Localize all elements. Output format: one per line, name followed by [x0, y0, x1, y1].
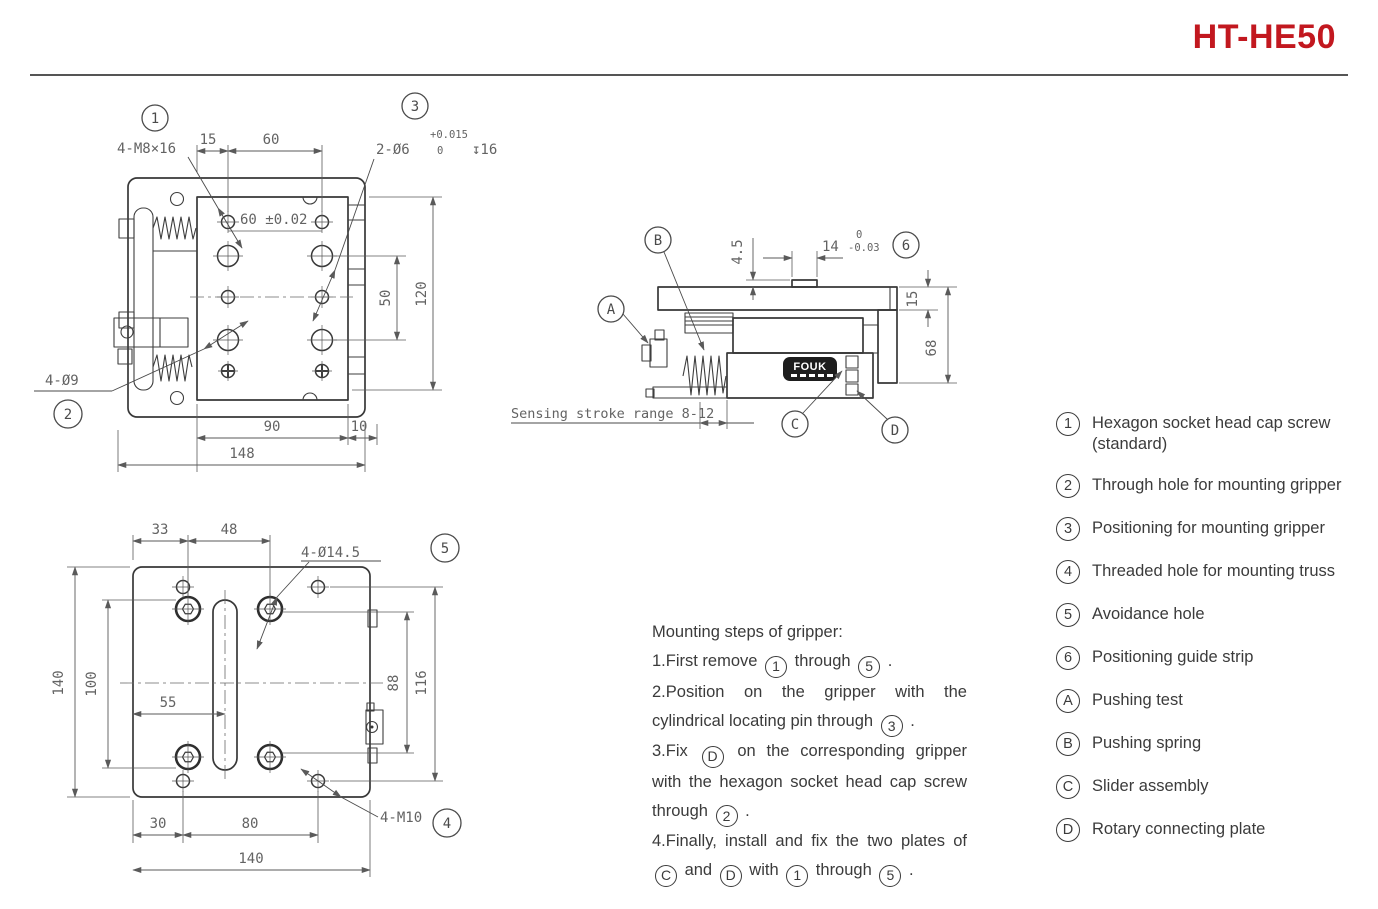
legend-rows: 1Hexagon socket head cap screw (standard…	[1056, 412, 1372, 842]
step-ref-circle: 2	[716, 805, 738, 827]
legend-item-4: 4Threaded hole for mounting truss	[1056, 560, 1372, 584]
dim-15: 15	[200, 132, 217, 148]
legend-label: Hexagon socket head cap screw (standard)	[1092, 412, 1372, 455]
bottom-view-drawing: 33 48 4-Ø14.5 5 140 100 55 88	[51, 522, 461, 877]
legend-label: Positioning for mounting gripper	[1092, 517, 1325, 539]
legend-symbol-circle: 2	[1056, 474, 1080, 498]
spring-bottom	[153, 355, 192, 381]
sensing-stroke-note: Sensing stroke range 8-12	[511, 406, 714, 422]
legend-label: Positioning guide strip	[1092, 646, 1253, 668]
dim-55: 55	[160, 695, 177, 711]
step-ref-circle: 5	[879, 865, 901, 887]
dim-88: 88	[386, 675, 402, 692]
side-view-drawing: FOUK 4.5 14 0 -0.03	[511, 227, 957, 443]
callout-a: A	[607, 302, 616, 318]
callout-5: 5	[441, 541, 449, 557]
legend-item-5: 5Avoidance hole	[1056, 603, 1372, 627]
dim-15-side: 15	[905, 291, 921, 308]
legend-item-C: CSlider assembly	[1056, 775, 1372, 799]
label-4d145: 4-Ø14.5	[301, 545, 360, 561]
step-ref-circle: D	[702, 746, 724, 768]
legend-symbol-circle: 4	[1056, 560, 1080, 584]
callout-b: B	[654, 233, 662, 249]
dim-4-5: 4.5	[730, 239, 746, 264]
dim-68: 68	[924, 340, 940, 357]
mounting-steps-body: 1.First remove 1 through 5 .2.Position o…	[652, 647, 967, 887]
mounting-steps: Mounting steps of gripper: 1.First remov…	[652, 618, 967, 887]
callout-c: C	[791, 417, 799, 433]
legend-label: Pushing spring	[1092, 732, 1201, 754]
pushing-spring-coil	[683, 356, 726, 395]
step-ref-circle: 1	[765, 656, 787, 678]
front-view-drawing: 15 60 60 ±0.02 50 120 90 10 148	[34, 93, 497, 472]
dim-14-tol-upper: 0	[856, 229, 862, 241]
dim-50: 50	[378, 290, 394, 307]
depth-symbol-16: ↧16	[472, 142, 497, 158]
dim-140-bottom: 140	[238, 851, 263, 867]
callout-1: 1	[151, 111, 159, 127]
dim-148: 148	[229, 446, 254, 462]
legend-label: Rotary connecting plate	[1092, 818, 1265, 840]
callout-6: 6	[902, 238, 910, 254]
callout-2: 2	[64, 407, 72, 423]
legend-item-1: 1Hexagon socket head cap screw (standard…	[1056, 412, 1372, 455]
brand-logo-text: FOUK	[793, 361, 826, 373]
datasheet-page: HT-HE50	[0, 0, 1378, 909]
legend-symbol-circle: 3	[1056, 517, 1080, 541]
legend-item-6: 6Positioning guide strip	[1056, 646, 1372, 670]
label-2d6: 2-Ø6	[376, 142, 410, 158]
legend-label: Threaded hole for mounting truss	[1092, 560, 1335, 582]
legend-symbol-circle: B	[1056, 732, 1080, 756]
mounting-step: 4.Finally, install and fix the two plate…	[652, 827, 967, 887]
legend-symbol-circle: 1	[1056, 412, 1080, 436]
legend-symbol-circle: C	[1056, 775, 1080, 799]
step-ref-circle: 3	[881, 715, 903, 737]
mounting-step: 1.First remove 1 through 5 .	[652, 647, 967, 678]
callout-d: D	[891, 423, 899, 439]
dim-120: 120	[414, 281, 430, 306]
step-ref-circle: C	[655, 865, 677, 887]
parts-legend: 1Hexagon socket head cap screw (standard…	[1056, 412, 1372, 861]
step-ref-circle: 5	[858, 656, 880, 678]
dim-10: 10	[351, 419, 368, 435]
legend-symbol-circle: D	[1056, 818, 1080, 842]
spring-top	[153, 217, 196, 239]
tol-upper: +0.015	[430, 129, 468, 141]
dim-60-top: 60	[263, 132, 280, 148]
mounting-step: 3.Fix D on the corresponding gripper wit…	[652, 737, 967, 827]
dim-14-tol-lower: -0.03	[848, 242, 880, 254]
dim-48: 48	[221, 522, 238, 538]
step-ref-circle: 1	[786, 865, 808, 887]
step-ref-circle: D	[720, 865, 742, 887]
legend-label: Through hole for mounting gripper	[1092, 474, 1341, 496]
legend-item-B: BPushing spring	[1056, 732, 1372, 756]
dim-80: 80	[242, 816, 259, 832]
dim-30: 30	[150, 816, 167, 832]
legend-label: Pushing test	[1092, 689, 1183, 711]
mounting-steps-heading: Mounting steps of gripper:	[652, 618, 967, 647]
legend-label: Avoidance hole	[1092, 603, 1205, 625]
legend-item-3: 3Positioning for mounting gripper	[1056, 517, 1372, 541]
dim-60-tol: 60 ±0.02	[240, 212, 307, 228]
label-4m10: 4-M10	[380, 810, 422, 826]
dim-90: 90	[264, 419, 281, 435]
legend-item-2: 2Through hole for mounting gripper	[1056, 474, 1372, 498]
dim-140-left: 140	[51, 670, 67, 695]
tol-lower: 0	[437, 145, 443, 157]
callout-3: 3	[411, 99, 419, 115]
dim-33: 33	[152, 522, 169, 538]
label-m8: 4-M8×16	[117, 141, 176, 157]
dim-116: 116	[414, 670, 430, 695]
legend-symbol-circle: 6	[1056, 646, 1080, 670]
callout-4: 4	[443, 816, 451, 832]
dim-14: 14	[822, 239, 839, 255]
label-4d9: 4-Ø9	[45, 373, 79, 389]
legend-item-D: DRotary connecting plate	[1056, 818, 1372, 842]
legend-symbol-circle: A	[1056, 689, 1080, 713]
legend-symbol-circle: 5	[1056, 603, 1080, 627]
legend-label: Slider assembly	[1092, 775, 1208, 797]
dim-100: 100	[84, 671, 100, 696]
mounting-step: 2.Position on the gripper with the cylin…	[652, 678, 967, 738]
legend-item-A: APushing test	[1056, 689, 1372, 713]
